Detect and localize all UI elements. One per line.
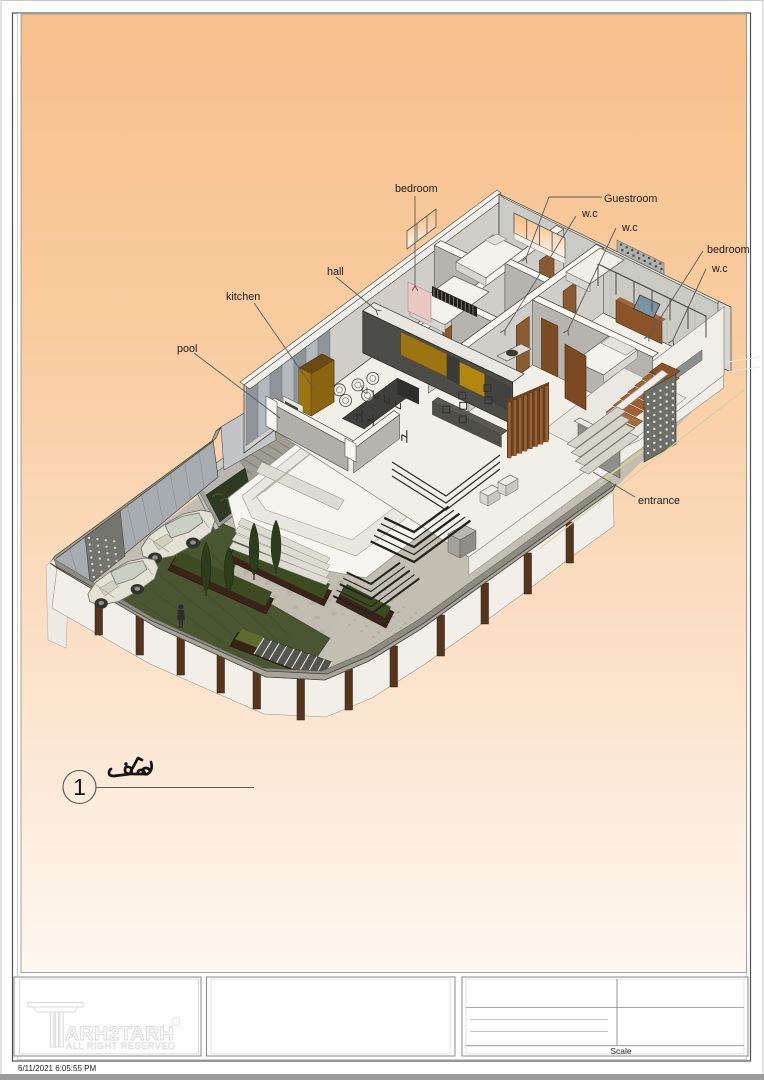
svg-text:Scale: Scale bbox=[610, 1046, 632, 1056]
svg-text:ALL RIGHT RESERVED: ALL RIGHT RESERVED bbox=[66, 1041, 175, 1051]
svg-text:bedroom: bedroom bbox=[707, 244, 750, 256]
svg-text:w.c: w.c bbox=[621, 222, 638, 234]
svg-text:pool: pool bbox=[177, 343, 197, 355]
svg-text:kitchen: kitchen bbox=[226, 291, 260, 303]
svg-text:w.c: w.c bbox=[581, 208, 598, 220]
svg-text:hall: hall bbox=[327, 266, 344, 278]
svg-text:bedroom: bedroom bbox=[395, 183, 438, 195]
svg-text:w.c: w.c bbox=[711, 263, 728, 275]
svg-text:6/11/2021 6:05:55 PM: 6/11/2021 6:05:55 PM bbox=[18, 1064, 96, 1073]
svg-text:1: 1 bbox=[73, 774, 86, 800]
svg-text:Guestroom: Guestroom bbox=[604, 193, 657, 205]
svg-text:entrance: entrance bbox=[638, 495, 680, 507]
